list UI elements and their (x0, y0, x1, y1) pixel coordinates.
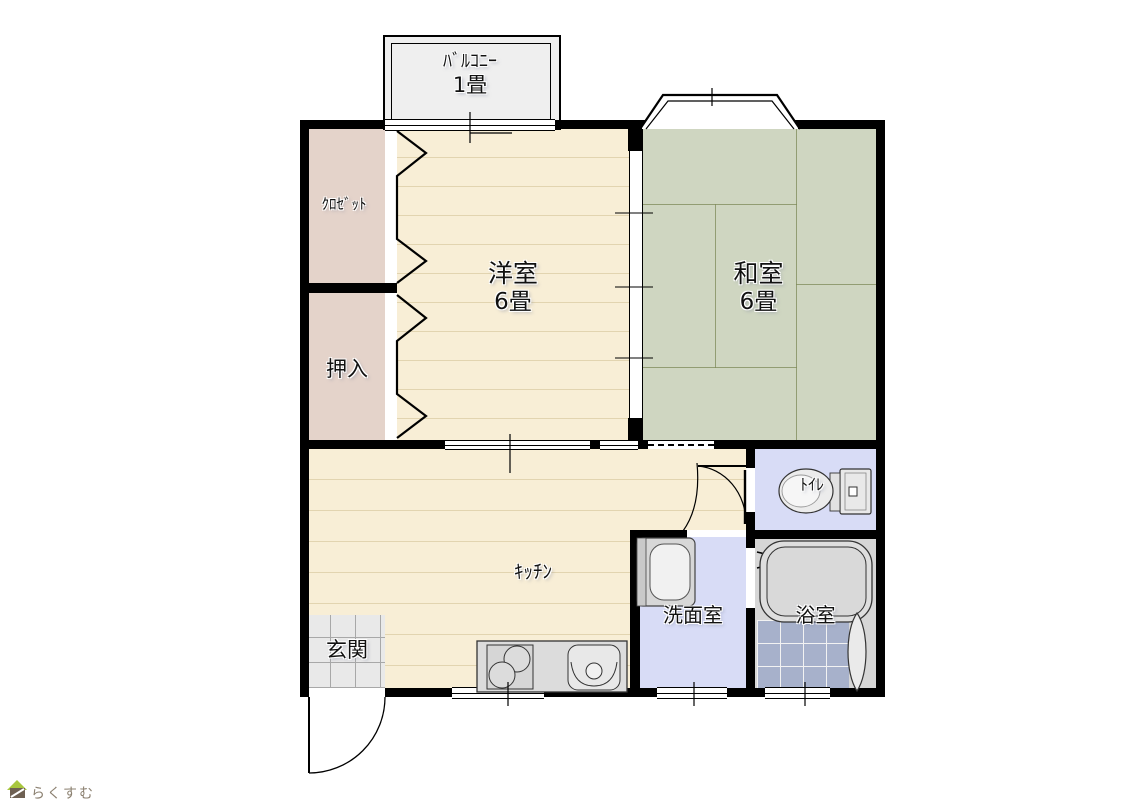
washroom-label: 洗面室 (640, 604, 746, 627)
toilet-label: ﾄｲﾚ (782, 476, 842, 494)
rakusumu-logo-text: らくすむ (31, 783, 95, 803)
closet-label: ｸﾛｾﾞｯﾄ (300, 196, 388, 213)
kitchen-counter-icon (477, 641, 627, 692)
symbols-overlay (0, 0, 1148, 809)
bathroom-label: 浴室 (755, 604, 876, 627)
balcony-label: ﾊﾞﾙｺﾆｰ 1畳 (390, 52, 550, 97)
japanese-room-label: 和室 6畳 (641, 260, 876, 315)
hall-door-arcs (683, 463, 748, 531)
washbasin-icon (637, 538, 695, 606)
western-room-label: 洋室 6畳 (397, 260, 629, 315)
bay-window (633, 88, 807, 129)
entrance-label: 玄関 (309, 638, 385, 662)
floor-plan: ﾊﾞﾙｺﾆｰ 1畳 (0, 0, 1148, 809)
oshiire-folding-door-icon (397, 295, 426, 438)
entrance-door-arc (309, 697, 385, 773)
rakusumu-logo-icon (7, 780, 27, 798)
kitchen-label: ｷｯﾁﾝ (433, 562, 633, 584)
oshiire-label: 押入 (309, 357, 385, 381)
